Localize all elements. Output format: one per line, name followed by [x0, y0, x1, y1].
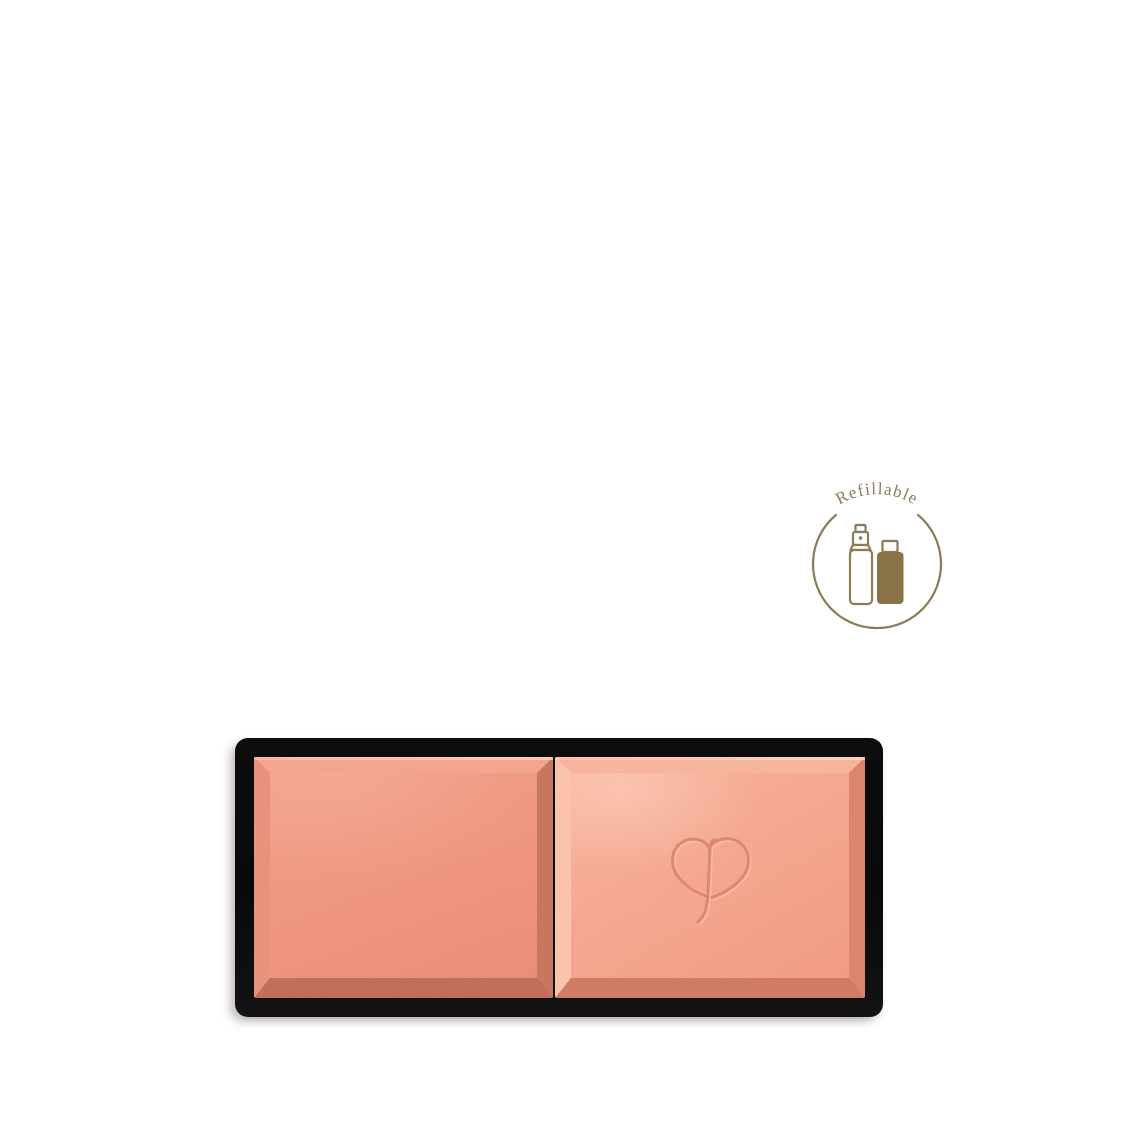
refillable-badge: Refillable: [790, 464, 964, 638]
product-photo: Refillable: [0, 0, 1124, 1124]
spray-bottle-icon: [850, 525, 872, 604]
compact-tray: [235, 738, 883, 1017]
blush-pan-left: [254, 757, 553, 998]
blush-pan-right: [555, 757, 865, 998]
badge-label: Refillable: [832, 479, 921, 508]
cle-de-peau-monogram-icon: [663, 834, 753, 924]
badge-label-text: Refillable: [832, 479, 921, 508]
refill-cartridge-icon: [877, 541, 904, 604]
